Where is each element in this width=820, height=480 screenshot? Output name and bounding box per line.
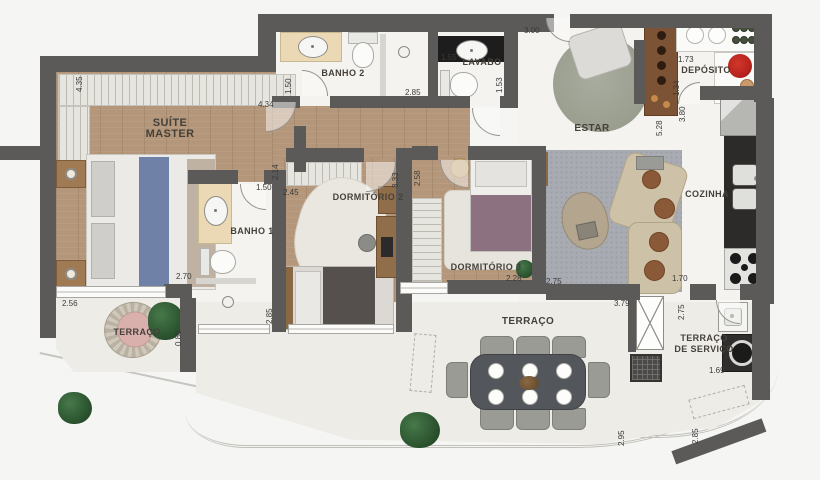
dim-banho2-width: 2.85 xyxy=(405,88,421,97)
place-setting xyxy=(488,363,504,379)
wall-dorm3-top-a xyxy=(412,146,438,160)
window-dorm2 xyxy=(288,324,394,334)
wall-servico-right xyxy=(752,296,770,400)
lamp-icon xyxy=(65,168,77,180)
lamp-icon xyxy=(65,268,77,280)
burner-knob-icon xyxy=(740,36,748,44)
pouf-tray xyxy=(576,221,599,241)
monitor-icon xyxy=(381,237,393,257)
dim-lavabo-depth: 1.53 xyxy=(495,77,504,93)
glass-icon xyxy=(651,95,658,102)
dim-suite-left: 4.35 xyxy=(75,76,84,92)
wall-dorm3-bottom xyxy=(447,280,546,294)
wall-step xyxy=(258,28,276,72)
dim-servico-right: 2.85 xyxy=(691,428,700,444)
wall-stub-topleft xyxy=(0,146,42,160)
dining-chair xyxy=(480,408,514,430)
banho1-sink xyxy=(204,196,228,226)
sofa-cushion xyxy=(654,198,675,219)
wall-top-estar xyxy=(570,14,772,28)
bottle-icon xyxy=(657,61,666,70)
sofa-cushion xyxy=(644,260,665,281)
dining-chair xyxy=(446,362,468,398)
dorm2-blanket xyxy=(323,267,375,329)
plate-icon xyxy=(708,26,726,44)
bottle-icon xyxy=(657,31,666,40)
room-label-dormitorio2: DORMITÓRIO 2 xyxy=(333,192,404,203)
wall-banho1-right xyxy=(272,184,286,332)
dim-dorm3-bottom: 2.28 xyxy=(506,274,522,283)
dim-terraco1-top: 2.56 xyxy=(62,299,78,308)
banho2-sink xyxy=(298,36,328,58)
dorm2-headboard xyxy=(285,267,293,329)
dim-terraco-right: 2.95 xyxy=(617,430,626,446)
burner-icon xyxy=(730,273,741,284)
suite-blue-throw xyxy=(139,157,169,287)
banho1-shower-divider xyxy=(196,278,256,284)
burner-knob-icon xyxy=(732,36,740,44)
wall-banho1-top-a xyxy=(188,170,238,184)
wall-suite-top xyxy=(40,56,272,72)
dim-deposito-width: 1.73 xyxy=(678,55,694,64)
banho1-toilet-bowl xyxy=(210,250,236,274)
place-setting xyxy=(556,389,572,405)
place-setting xyxy=(488,389,504,405)
terraco-plant xyxy=(400,412,440,448)
dining-chair xyxy=(516,408,550,430)
wall-hall-top-c xyxy=(440,96,470,108)
dorm2-pillow xyxy=(295,271,321,325)
dim-suite-bottom: 2.70 xyxy=(176,272,192,281)
lavabo-toilet-bowl xyxy=(450,72,478,98)
dim-cozinha-bottom: 1.70 xyxy=(672,274,688,283)
dorm3-closet xyxy=(412,198,442,282)
wall-left xyxy=(40,56,56,338)
dim-suite-top: 4.34 xyxy=(258,100,274,109)
room-label-estar: ESTAR xyxy=(574,123,609,134)
dorm2-chair xyxy=(358,234,376,252)
dim-servico-width: 1.69 xyxy=(709,366,725,375)
wall-dorm2-top-a xyxy=(286,148,364,162)
table-centerpiece xyxy=(519,376,539,390)
red-pot xyxy=(728,54,752,78)
servico-label-line2: DE SERVIÇO xyxy=(674,344,733,354)
servico-label-line1: TERRAÇO xyxy=(680,333,727,343)
outer-plant xyxy=(58,392,92,424)
wall-kitchen-bottom-a xyxy=(690,284,716,300)
suite-nightstand xyxy=(56,160,86,188)
shower-head-icon xyxy=(222,296,234,308)
wall-dorm3-right xyxy=(532,146,546,292)
shaft-box xyxy=(636,296,664,350)
burner-icon xyxy=(730,253,741,264)
drain-grate xyxy=(630,354,662,382)
dorm3-pillow xyxy=(475,161,527,187)
room-label-terraco-main: TERRAÇO xyxy=(502,316,554,327)
room-label-cozinha: COZINHA xyxy=(685,189,729,200)
window-dorm3 xyxy=(400,282,448,294)
banho1-toilet xyxy=(200,248,210,276)
room-label-dormitorio3: DORMITÓRIO 3 xyxy=(451,262,522,273)
glass-icon xyxy=(663,101,670,108)
suite-pillow xyxy=(91,161,115,217)
room-label-lavabo: LAVABO xyxy=(462,57,501,68)
dim-suite-door: 2.14 xyxy=(271,164,280,180)
room-label-terraco-servico: TERRAÇO DE SERVIÇO xyxy=(674,333,733,355)
dim-hall-dorm3: 2.58 xyxy=(413,170,422,186)
dining-table xyxy=(470,354,586,410)
dorm3-blanket xyxy=(471,195,531,251)
window-banho1 xyxy=(198,324,270,334)
dorm3-bed xyxy=(470,156,532,252)
dim-cozinha-len: 3.80 xyxy=(678,106,687,122)
room-label-banho2: BANHO 2 xyxy=(321,68,364,79)
floor-plan: SUÍTE MASTER BANHO 2 LAVABO ESTAR DEPÓSI… xyxy=(0,0,820,480)
fridge xyxy=(720,98,760,136)
dim-deposito-depth: 1.34 xyxy=(672,80,681,96)
bottle-icon xyxy=(657,76,666,85)
dim-lavabo-width: 1.55 xyxy=(441,53,457,62)
sofa-cushion xyxy=(649,232,669,252)
lavabo-door xyxy=(472,108,500,136)
dim-terraco-top: 3.79 xyxy=(614,299,630,308)
room-label-terraco-left: TERRAÇO xyxy=(113,327,160,338)
dorm2-desk xyxy=(376,216,398,278)
dim-estar-top: 3.00 xyxy=(524,26,540,35)
estar-side-bench xyxy=(636,156,664,170)
suite-nightstand xyxy=(56,260,86,288)
dim-hall-dorm2: 3.33 xyxy=(391,172,400,188)
wall-deposito-left xyxy=(634,40,646,104)
room-label-suite-master: SUÍTE MASTER xyxy=(146,118,195,140)
plate-icon xyxy=(686,26,704,44)
room-label-banho1: BANHO 1 xyxy=(230,226,273,237)
dining-chair xyxy=(588,362,610,398)
dining-chair xyxy=(552,408,586,430)
banho2-toilet-bowl xyxy=(352,42,374,68)
burner-icon xyxy=(741,264,748,271)
dim-terraco1-right: 0.80 xyxy=(174,330,183,346)
dim-estar-len: 5.28 xyxy=(655,120,664,136)
dim-rug-bottom: 2.75 xyxy=(546,277,562,286)
dim-servico-left: 2.75 xyxy=(677,304,686,320)
wall-suite-bottom-chunk xyxy=(164,284,192,298)
window-suite-terraco xyxy=(56,286,166,298)
dim-banho2-left: 1.50 xyxy=(284,78,293,94)
wall-hall-top-b xyxy=(330,96,440,108)
wall-deposito-bottom xyxy=(700,86,772,100)
room-label-deposito: DEPÓSITO xyxy=(681,65,731,76)
dim-dorm2-top: 2.45 xyxy=(283,188,299,197)
wall-hall-top-d xyxy=(500,96,518,108)
kitchen-sink xyxy=(732,188,758,210)
wall-estar-bottom xyxy=(546,284,640,300)
wall-right-kitchen xyxy=(756,98,774,304)
dim-banho1-top: 1.50 xyxy=(256,183,272,192)
suite-label-line2: MASTER xyxy=(146,128,195,140)
suite-pillow xyxy=(91,223,115,279)
shower-head-icon xyxy=(398,46,410,58)
place-setting xyxy=(556,363,572,379)
bottle-icon xyxy=(657,46,666,55)
kitchen-sink xyxy=(732,164,758,186)
estar-bar-cabinet xyxy=(644,24,678,116)
dim-banho1-bottom: 2.85 xyxy=(265,308,274,324)
sofa-cushion xyxy=(642,170,661,189)
place-setting xyxy=(522,389,538,405)
